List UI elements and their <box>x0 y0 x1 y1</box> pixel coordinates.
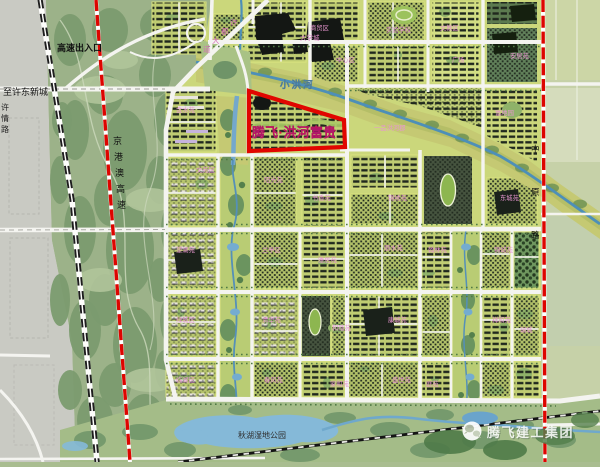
svg-text:庭苑: 庭苑 <box>426 379 439 388</box>
svg-text:绿城区: 绿城区 <box>176 315 195 324</box>
svg-text:康城苑: 康城苑 <box>388 315 408 324</box>
svg-text:和谐苑: 和谐苑 <box>332 323 352 332</box>
svg-text:文苑区: 文苑区 <box>196 165 215 174</box>
svg-text:许: 许 <box>230 17 238 27</box>
svg-text:翰林苑: 翰林苑 <box>428 245 448 254</box>
svg-text:金水苑: 金水苑 <box>176 105 196 114</box>
svg-text:锦城苑: 锦城苑 <box>494 245 514 254</box>
svg-text:至许东新城: 至许东新城 <box>3 86 48 97</box>
svg-text:阳光苑: 阳光苑 <box>264 175 284 184</box>
svg-text:书香苑: 书香苑 <box>312 193 332 202</box>
svg-text:富地园: 富地园 <box>495 108 514 117</box>
svg-text:雅居苑: 雅居苑 <box>318 255 338 264</box>
svg-text:望湖苑: 望湖苑 <box>176 245 196 254</box>
svg-text:大: 大 <box>212 35 220 45</box>
svg-text:一品洪河郡: 一品洪河郡 <box>374 123 406 132</box>
svg-text:大学城: 大学城 <box>300 33 320 42</box>
svg-text:清华苑: 清华苑 <box>262 315 282 324</box>
svg-text:丽水苑: 丽水苑 <box>384 243 404 252</box>
svg-text:安居苑: 安居苑 <box>510 51 530 60</box>
svg-text:广场: 广场 <box>452 55 465 64</box>
svg-text:盛世苑: 盛世苑 <box>392 375 412 384</box>
svg-text:商贸区: 商贸区 <box>310 23 329 32</box>
svg-text:东城苑: 东城苑 <box>500 193 520 202</box>
svg-text:许情路: 许情路 <box>1 102 9 134</box>
svg-text:道: 道 <box>203 44 211 54</box>
svg-text:家和苑: 家和苑 <box>330 379 350 388</box>
svg-text:锦绣苑: 锦绣苑 <box>388 193 408 202</box>
svg-text:祥和苑: 祥和苑 <box>492 315 512 324</box>
svg-text:瑞城: 瑞城 <box>520 325 533 334</box>
svg-text:临湖区: 临湖区 <box>176 375 195 384</box>
svg-text:兰亭区: 兰亭区 <box>262 245 281 254</box>
svg-text:文教区: 文教区 <box>440 23 459 32</box>
svg-text:腾飞建工集团: 腾飞建工集团 <box>486 425 574 440</box>
svg-text:春风苑: 春风苑 <box>264 375 284 384</box>
svg-text:秋湖湿地公园: 秋湖湿地公园 <box>238 430 286 440</box>
svg-text:小洪河: 小洪河 <box>279 79 315 91</box>
svg-text:中心区: 中心区 <box>336 55 355 64</box>
svg-text:腾飞·洪河富贵: 腾飞·洪河富贵 <box>251 125 337 140</box>
svg-text:实验学校: 实验学校 <box>386 25 412 34</box>
svg-text:都: 都 <box>221 27 229 36</box>
svg-text:高速出入口: 高速出入口 <box>57 42 102 53</box>
